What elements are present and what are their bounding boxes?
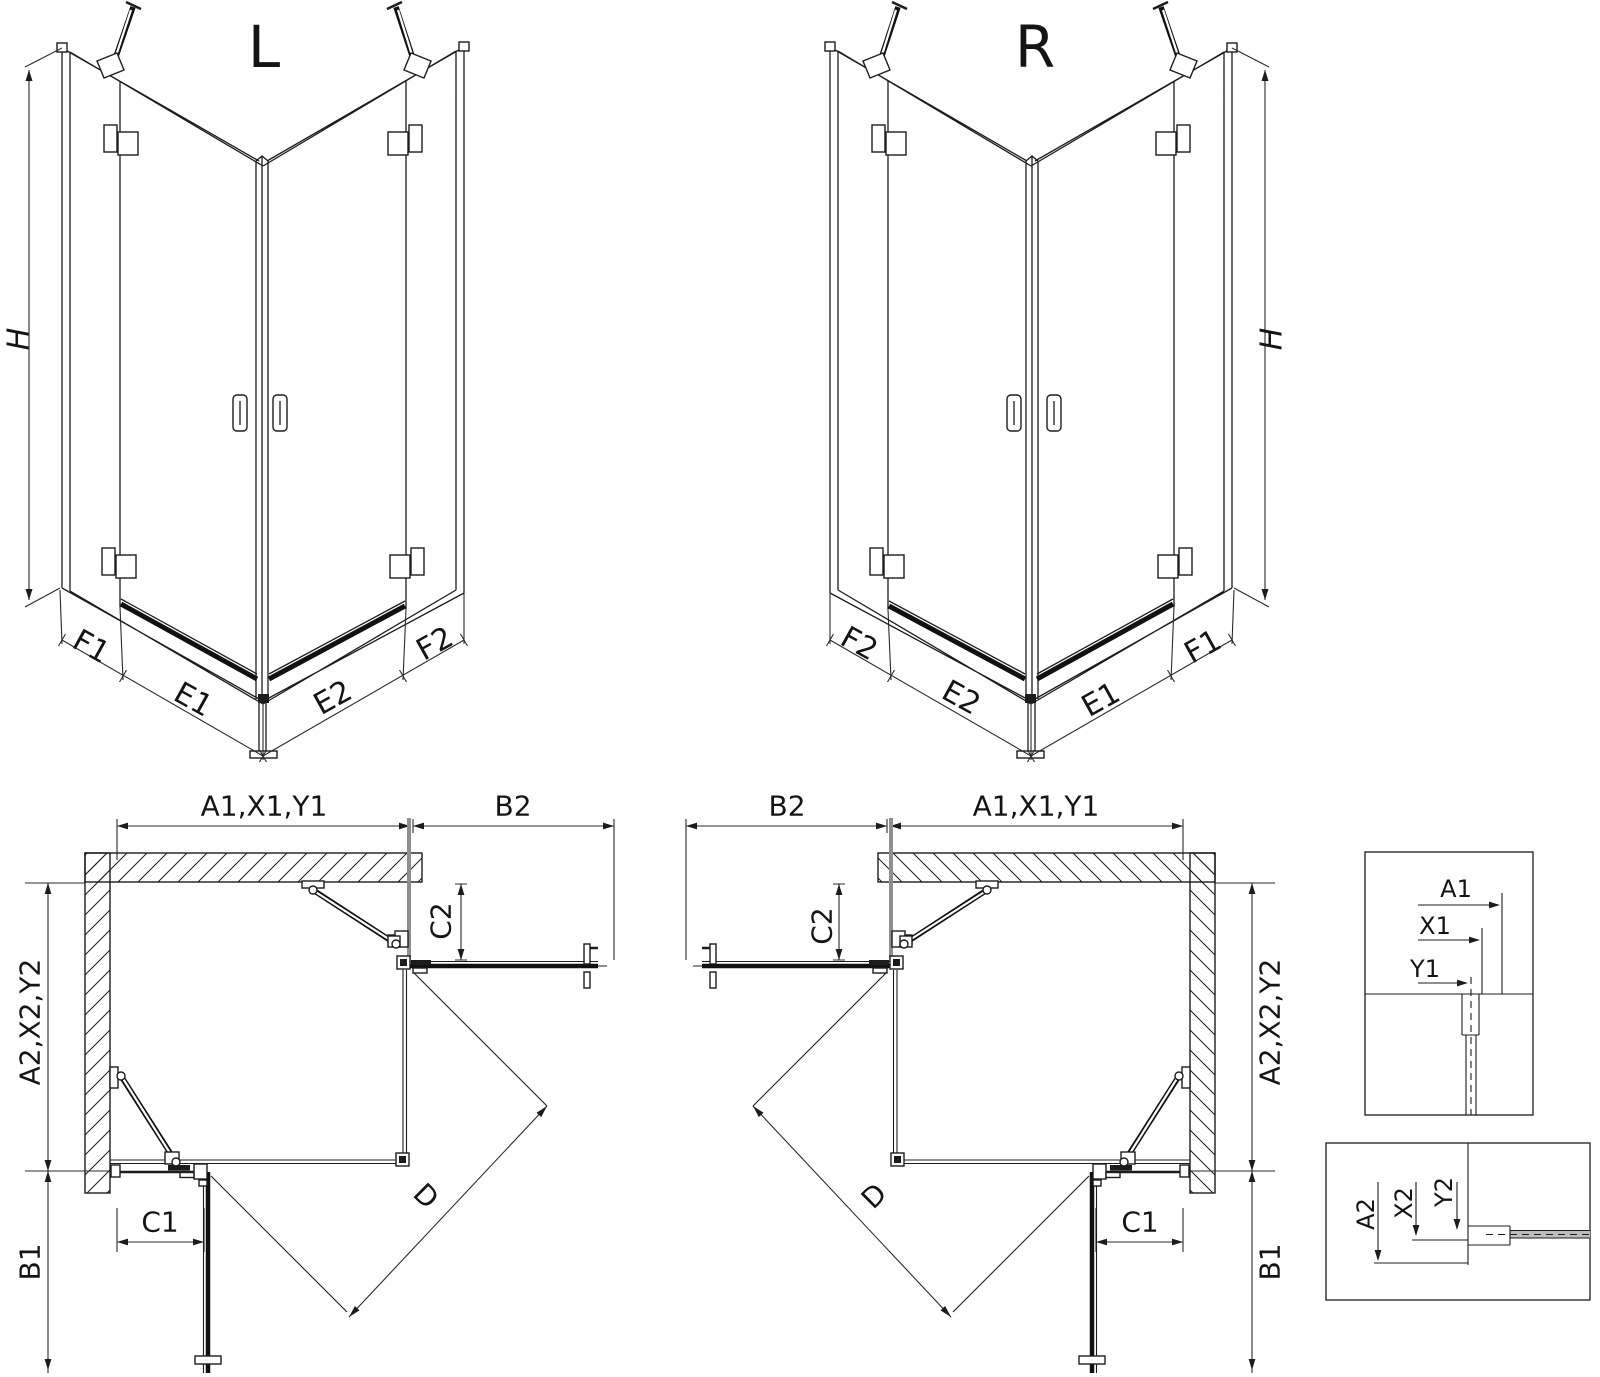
dim-label-d-left: D — [407, 1177, 446, 1216]
bottom-rail — [121, 604, 405, 679]
dim-label-a1-right: A1,X1,Y1 — [973, 790, 1100, 823]
detail-label-x2: X2 — [1390, 1187, 1418, 1219]
dim-label-e2-left: E2 — [308, 673, 358, 722]
detail-box-bottom: A2 X2 Y2 — [1326, 1143, 1590, 1300]
door-swing-lines — [211, 972, 547, 1317]
wall-left — [85, 853, 110, 1193]
plan-fittings — [111, 931, 431, 1186]
dim-label-a2-right: A2,X2,Y2 — [1254, 959, 1287, 1086]
diagram-canvas: L H F1 E1 E2 F2 R H F2 E2 E1 F1 — [0, 0, 1600, 1373]
dim-label-a1-left: A1,X1,Y1 — [201, 790, 328, 823]
detail-label-a1: A1 — [1440, 875, 1472, 903]
dim-label-c1-left: C1 — [141, 1206, 178, 1239]
door-open-right — [410, 944, 607, 988]
view-title-right: R — [1015, 13, 1055, 81]
door-handles — [233, 395, 287, 431]
dim-label-e1-right: E1 — [1076, 675, 1126, 724]
dim-label-c2-right: C2 — [806, 907, 839, 944]
door-open-bottom — [195, 1172, 221, 1373]
plan-dim-lines — [25, 819, 614, 1373]
dim-label-b1-right: B1 — [1254, 1243, 1287, 1280]
dim-label-a2-left: A2,X2,Y2 — [14, 959, 47, 1086]
dim-label-f2-right: F2 — [835, 620, 884, 668]
view-title-left: L — [248, 13, 280, 81]
detail-label-y2: Y2 — [1430, 1177, 1458, 1208]
detail-box-top: A1 X1 Y1 — [1365, 852, 1533, 1115]
dim-chain-lines — [59, 590, 468, 762]
iso-view-right-labels: R H F2 E2 E1 F1 — [835, 13, 1290, 725]
tray-outline — [110, 970, 407, 1164]
corner-foot — [258, 694, 269, 703]
dim-label-e1-left: E1 — [168, 675, 218, 724]
dim-label-b2-right: B2 — [768, 790, 805, 823]
dim-label-f1-left: F1 — [67, 623, 116, 671]
dim-label-h-right: H — [1255, 328, 1290, 351]
dim-label-h-left: H — [2, 328, 37, 351]
dim-label-e2-right: E2 — [936, 673, 986, 722]
wall-top — [85, 853, 422, 882]
dim-label-f2-left: F2 — [411, 620, 460, 668]
dim-label-b2-left: B2 — [494, 790, 531, 823]
dim-label-c2-left: C2 — [425, 902, 458, 939]
hinges — [102, 125, 424, 578]
plan-view-right-linework — [686, 818, 1275, 1373]
dim-label-f1-right: F1 — [1179, 623, 1228, 671]
technical-drawing-page: L H F1 E1 E2 F2 R H F2 E2 E1 F1 — [0, 0, 1600, 1373]
dim-h-lines — [25, 48, 62, 607]
plan-view-left-linework — [25, 818, 614, 1373]
detail-label-a2: A2 — [1352, 1198, 1380, 1230]
detail-label-y1: Y1 — [1409, 955, 1440, 983]
plan-struts — [110, 881, 400, 1166]
detail-label-x1: X1 — [1419, 912, 1451, 940]
dim-label-d-right: D — [855, 1177, 894, 1216]
dim-label-c1-right: C1 — [1121, 1206, 1158, 1239]
dim-label-b1-left: B1 — [14, 1243, 47, 1280]
